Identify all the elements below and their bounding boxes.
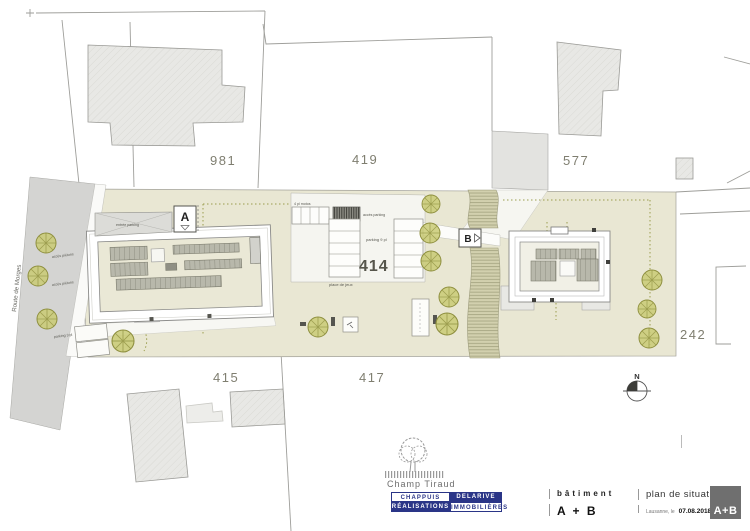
driveway-577 <box>492 131 548 190</box>
solar-panels-b <box>531 249 598 281</box>
tree-icon <box>436 313 458 335</box>
tree-icon <box>639 328 659 348</box>
parcel-415-label: 415 <box>213 370 239 385</box>
company-name-4: IMMOBILIÈRES <box>450 502 502 512</box>
site-plan-sheet: entrée parking A B <box>0 0 750 531</box>
survey-cross-icon <box>26 9 34 17</box>
tree-icon <box>422 195 440 213</box>
parcel-577-label: 577 <box>563 153 589 168</box>
building-b-marker: B <box>459 229 481 247</box>
north-arrow-icon: N <box>623 372 651 401</box>
stall-column-right <box>394 219 423 278</box>
titleblock-tick <box>681 435 682 448</box>
building-b-label: B <box>464 234 471 245</box>
divider <box>638 489 639 500</box>
building-parcel-415-a <box>127 389 188 482</box>
parcel-242-label: 242 <box>680 327 706 342</box>
batiment-block: bâtiment A + B <box>549 489 614 523</box>
tree-icon <box>421 251 441 271</box>
batiment-value: A + B <box>557 504 598 518</box>
divider <box>638 505 639 513</box>
company-logo: CHAPPUIS DELARIVE RÉALISATIONS IMMOBILIÈ… <box>391 492 502 512</box>
tree-icon <box>36 233 56 253</box>
site-plan-drawing: entrée parking A B <box>0 0 750 531</box>
tree-icon <box>37 309 57 329</box>
moto-stalls <box>292 207 329 224</box>
divider <box>549 489 550 499</box>
building-parcel-415-b <box>230 389 285 427</box>
parcel-981-label: 981 <box>210 153 236 168</box>
stall-column-left <box>329 219 360 277</box>
project-name: Champ Tiraud <box>387 479 456 489</box>
place-de-jeux-label: place de jeux <box>329 282 353 287</box>
parcel-414-label: 414 <box>359 258 389 275</box>
building-parcel-577 <box>557 42 621 136</box>
parking-ramp: entrée parking <box>95 212 172 236</box>
annex-parcel-415 <box>186 403 223 423</box>
small-building-577 <box>676 158 693 179</box>
building-a-marker: A <box>174 205 198 232</box>
company-name-2: DELARIVE <box>450 492 502 502</box>
building-a-label: A <box>181 210 190 224</box>
slope-hedge <box>467 190 500 358</box>
building-a <box>86 225 276 337</box>
tree-icon <box>420 223 440 243</box>
company-name-3: RÉALISATIONS <box>391 502 450 512</box>
building-parcel-981 <box>88 45 245 146</box>
place-label: Lausanne, le <box>646 509 675 515</box>
parcel-419-label: 419 <box>352 152 378 167</box>
parcel-417-label: 417 <box>359 370 385 385</box>
north-label: N <box>634 372 639 381</box>
tree-icon <box>439 287 459 307</box>
tree-icon <box>112 330 134 352</box>
company-name-1: CHAPPUIS <box>391 492 450 502</box>
champ-tiraud-logo-icon <box>385 438 444 475</box>
batiment-label: bâtiment <box>557 489 614 498</box>
tree-icon <box>28 266 48 286</box>
divider <box>549 504 550 516</box>
building-b <box>501 227 610 310</box>
tree-icon <box>642 270 662 290</box>
tree-icon <box>308 317 328 337</box>
date-value: 07.08.2018 <box>679 508 712 515</box>
parking-9pl-label: parking 9 pl <box>366 237 387 242</box>
motos-label: 4 pl motos <box>294 202 311 206</box>
entree-parking-label: entrée parking <box>116 223 139 227</box>
sheet-code-badge: A+B <box>710 486 741 519</box>
acces-parking-label: accès parking <box>363 213 385 217</box>
tree-icon <box>638 300 656 318</box>
